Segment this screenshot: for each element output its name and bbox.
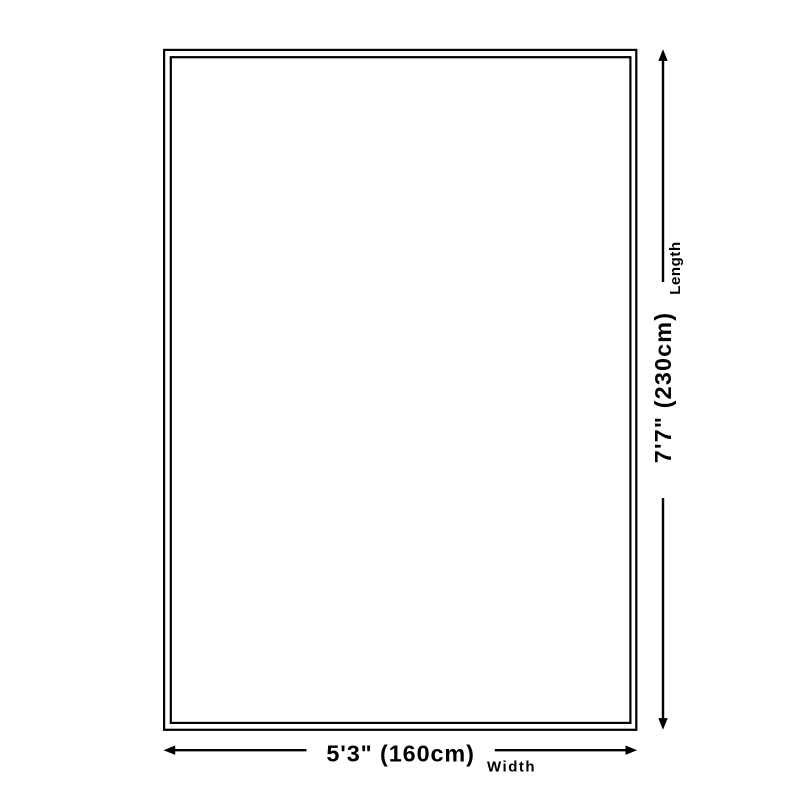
svg-text:Length: Length [667,241,684,295]
svg-text:5'3" (160cm): 5'3" (160cm) [326,741,474,767]
svg-text:Width: Width [487,759,536,776]
svg-text:7'7" (230cm): 7'7" (230cm) [650,312,676,463]
